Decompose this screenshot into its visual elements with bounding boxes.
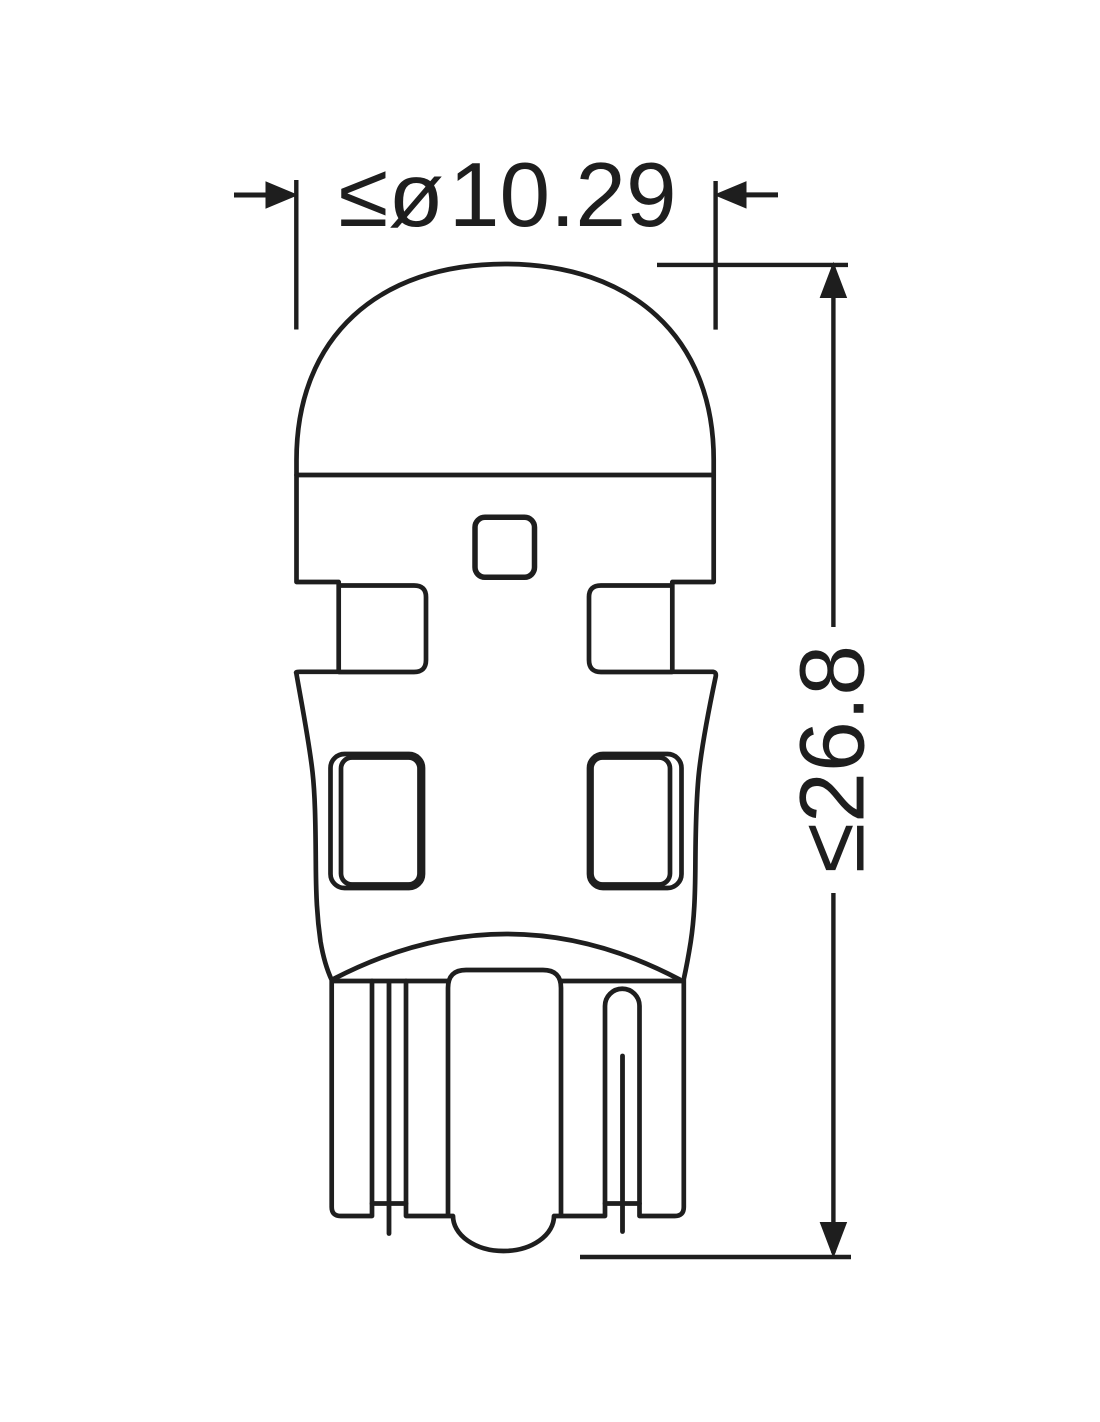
svg-text:≤ø10.29: ≤ø10.29 xyxy=(338,145,676,246)
svg-text:≤26.8: ≤26.8 xyxy=(782,645,884,873)
